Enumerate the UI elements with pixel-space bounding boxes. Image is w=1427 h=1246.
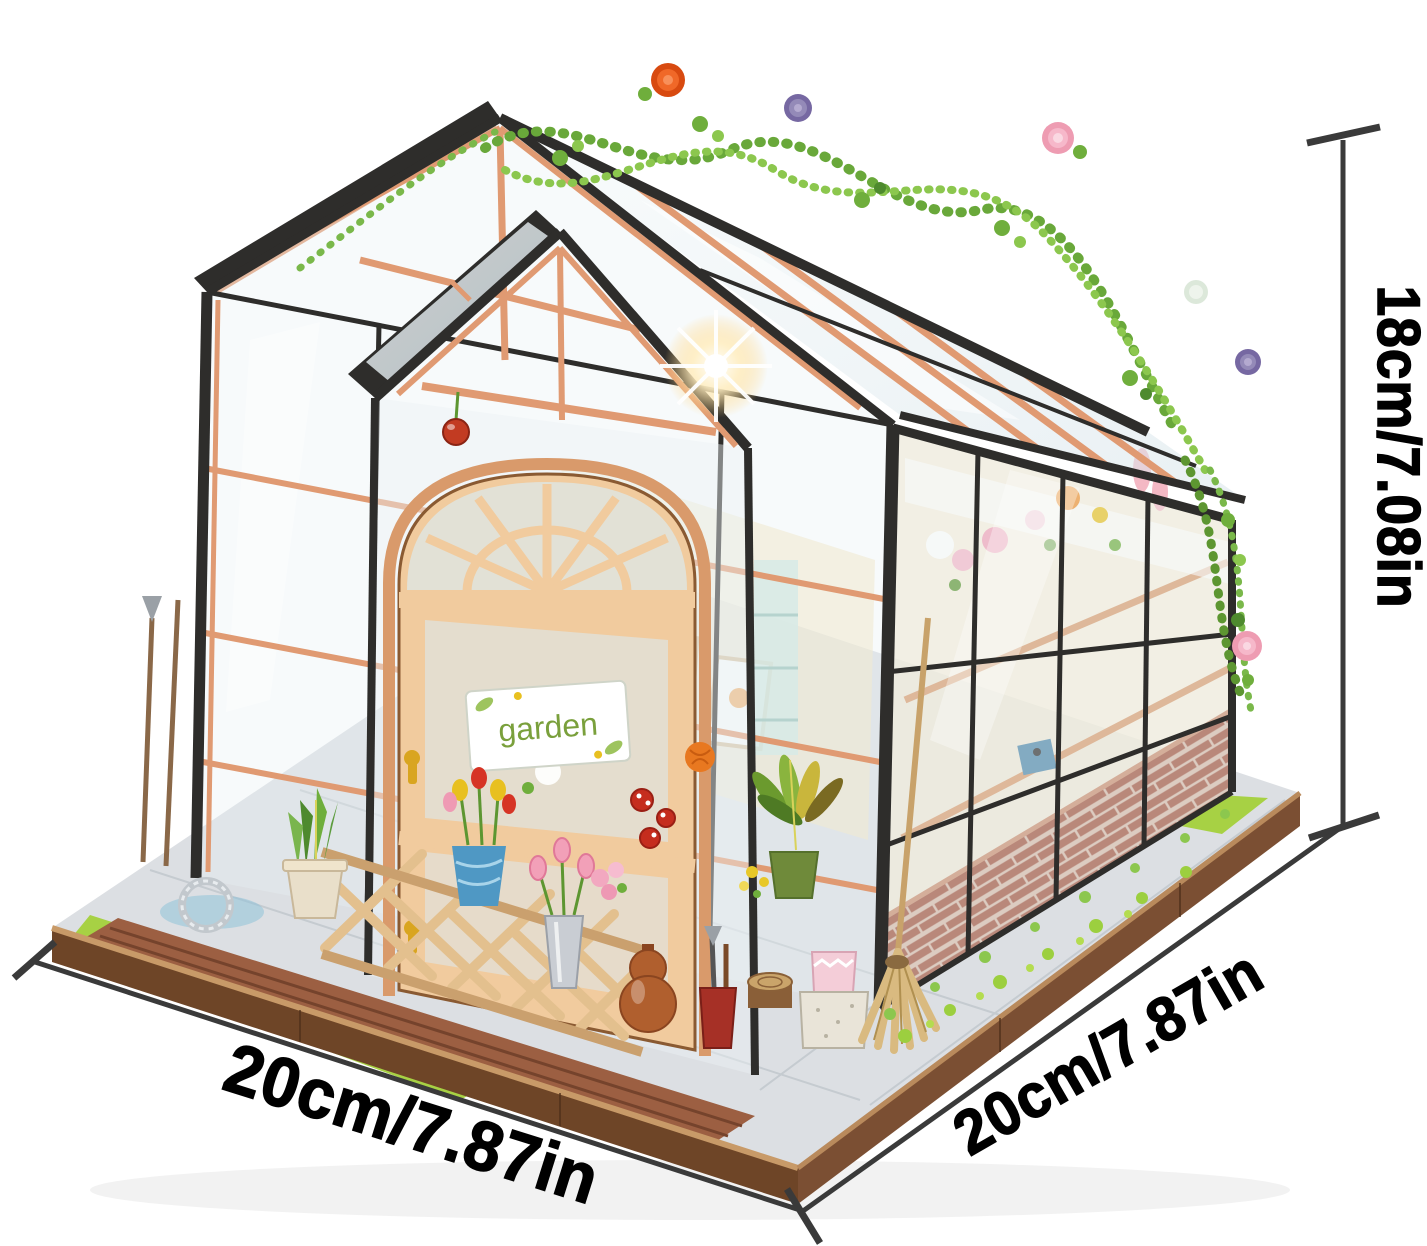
garden-sign-text: garden [497, 706, 599, 749]
rose-pink [1042, 122, 1087, 159]
rose-purple [784, 94, 812, 122]
greenhouse-product-photo: garden [0, 0, 1427, 1246]
garden-sign: garden [465, 681, 630, 772]
wood-stump [748, 973, 792, 1008]
orange-pompom [685, 742, 715, 772]
rose-orange [638, 63, 685, 101]
rose-mint [1184, 280, 1208, 304]
rose-purple-right [1235, 349, 1261, 375]
base-shadow [90, 1160, 1290, 1220]
width-left-cap [14, 942, 55, 978]
rose-pink-corner [1232, 631, 1262, 661]
height-dimension-label: 18cm/7.08in [1365, 286, 1427, 609]
garden-tools-left [142, 596, 178, 866]
product-image: garden [0, 0, 1427, 1246]
